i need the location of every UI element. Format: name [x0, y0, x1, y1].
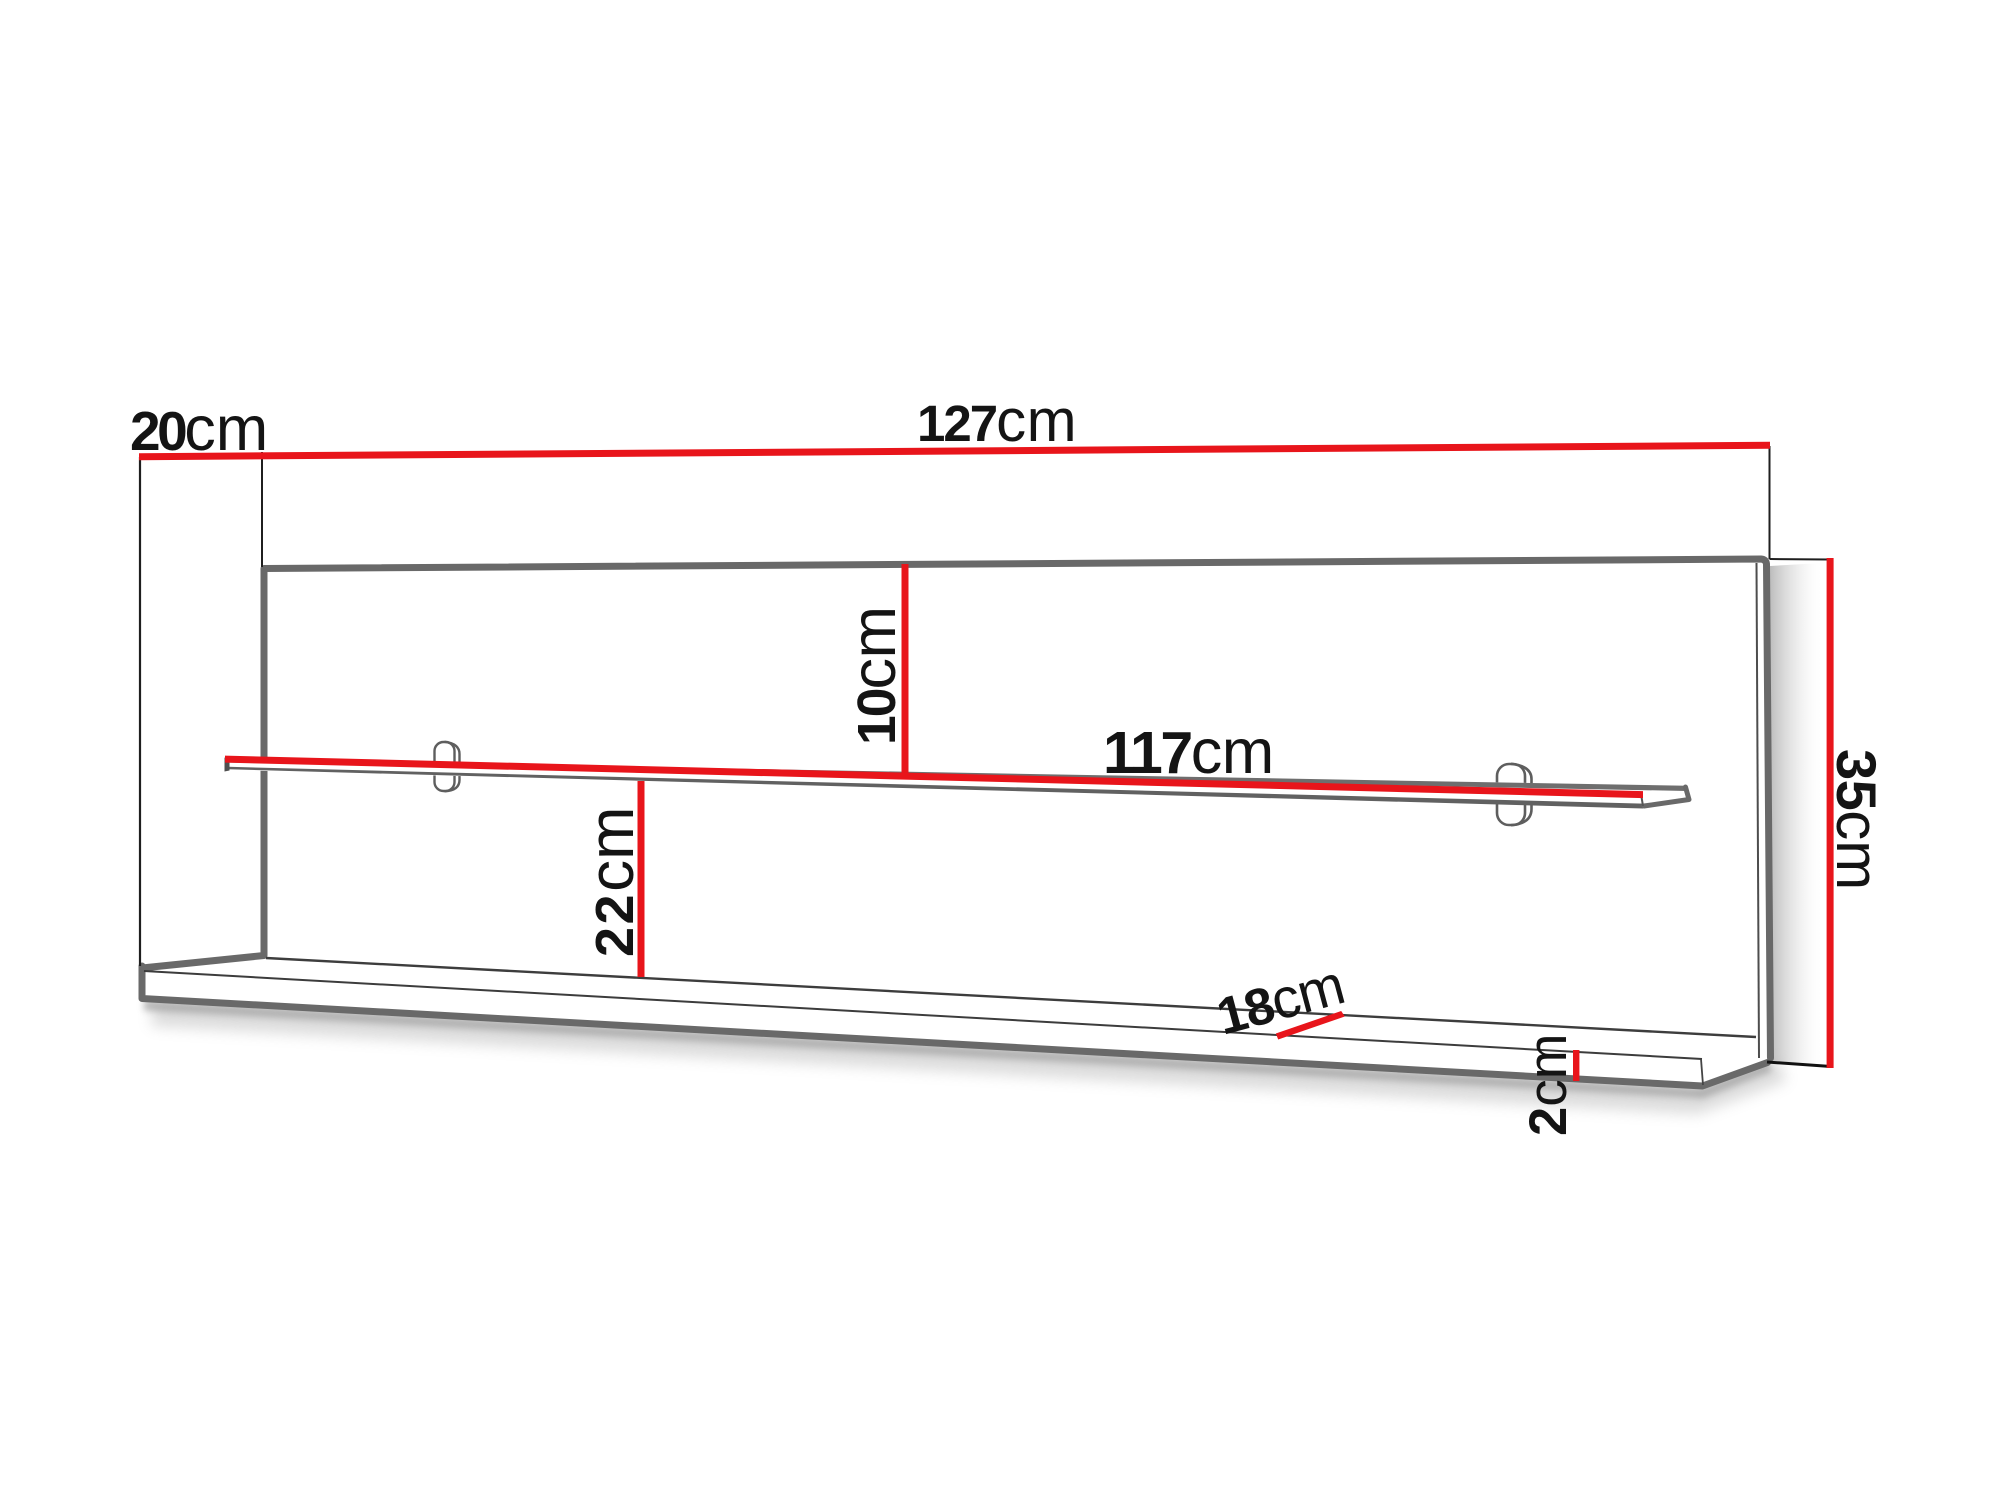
- svg-text:127cm: 127cm: [917, 387, 1077, 454]
- svg-text:117cm: 117cm: [1103, 717, 1274, 787]
- svg-text:35cm: 35cm: [1824, 749, 1891, 890]
- svg-text:10cm: 10cm: [839, 607, 909, 746]
- svg-text:22cm: 22cm: [575, 807, 647, 957]
- svg-text:2cm: 2cm: [1516, 1033, 1578, 1136]
- svg-text:20cm: 20cm: [130, 394, 268, 464]
